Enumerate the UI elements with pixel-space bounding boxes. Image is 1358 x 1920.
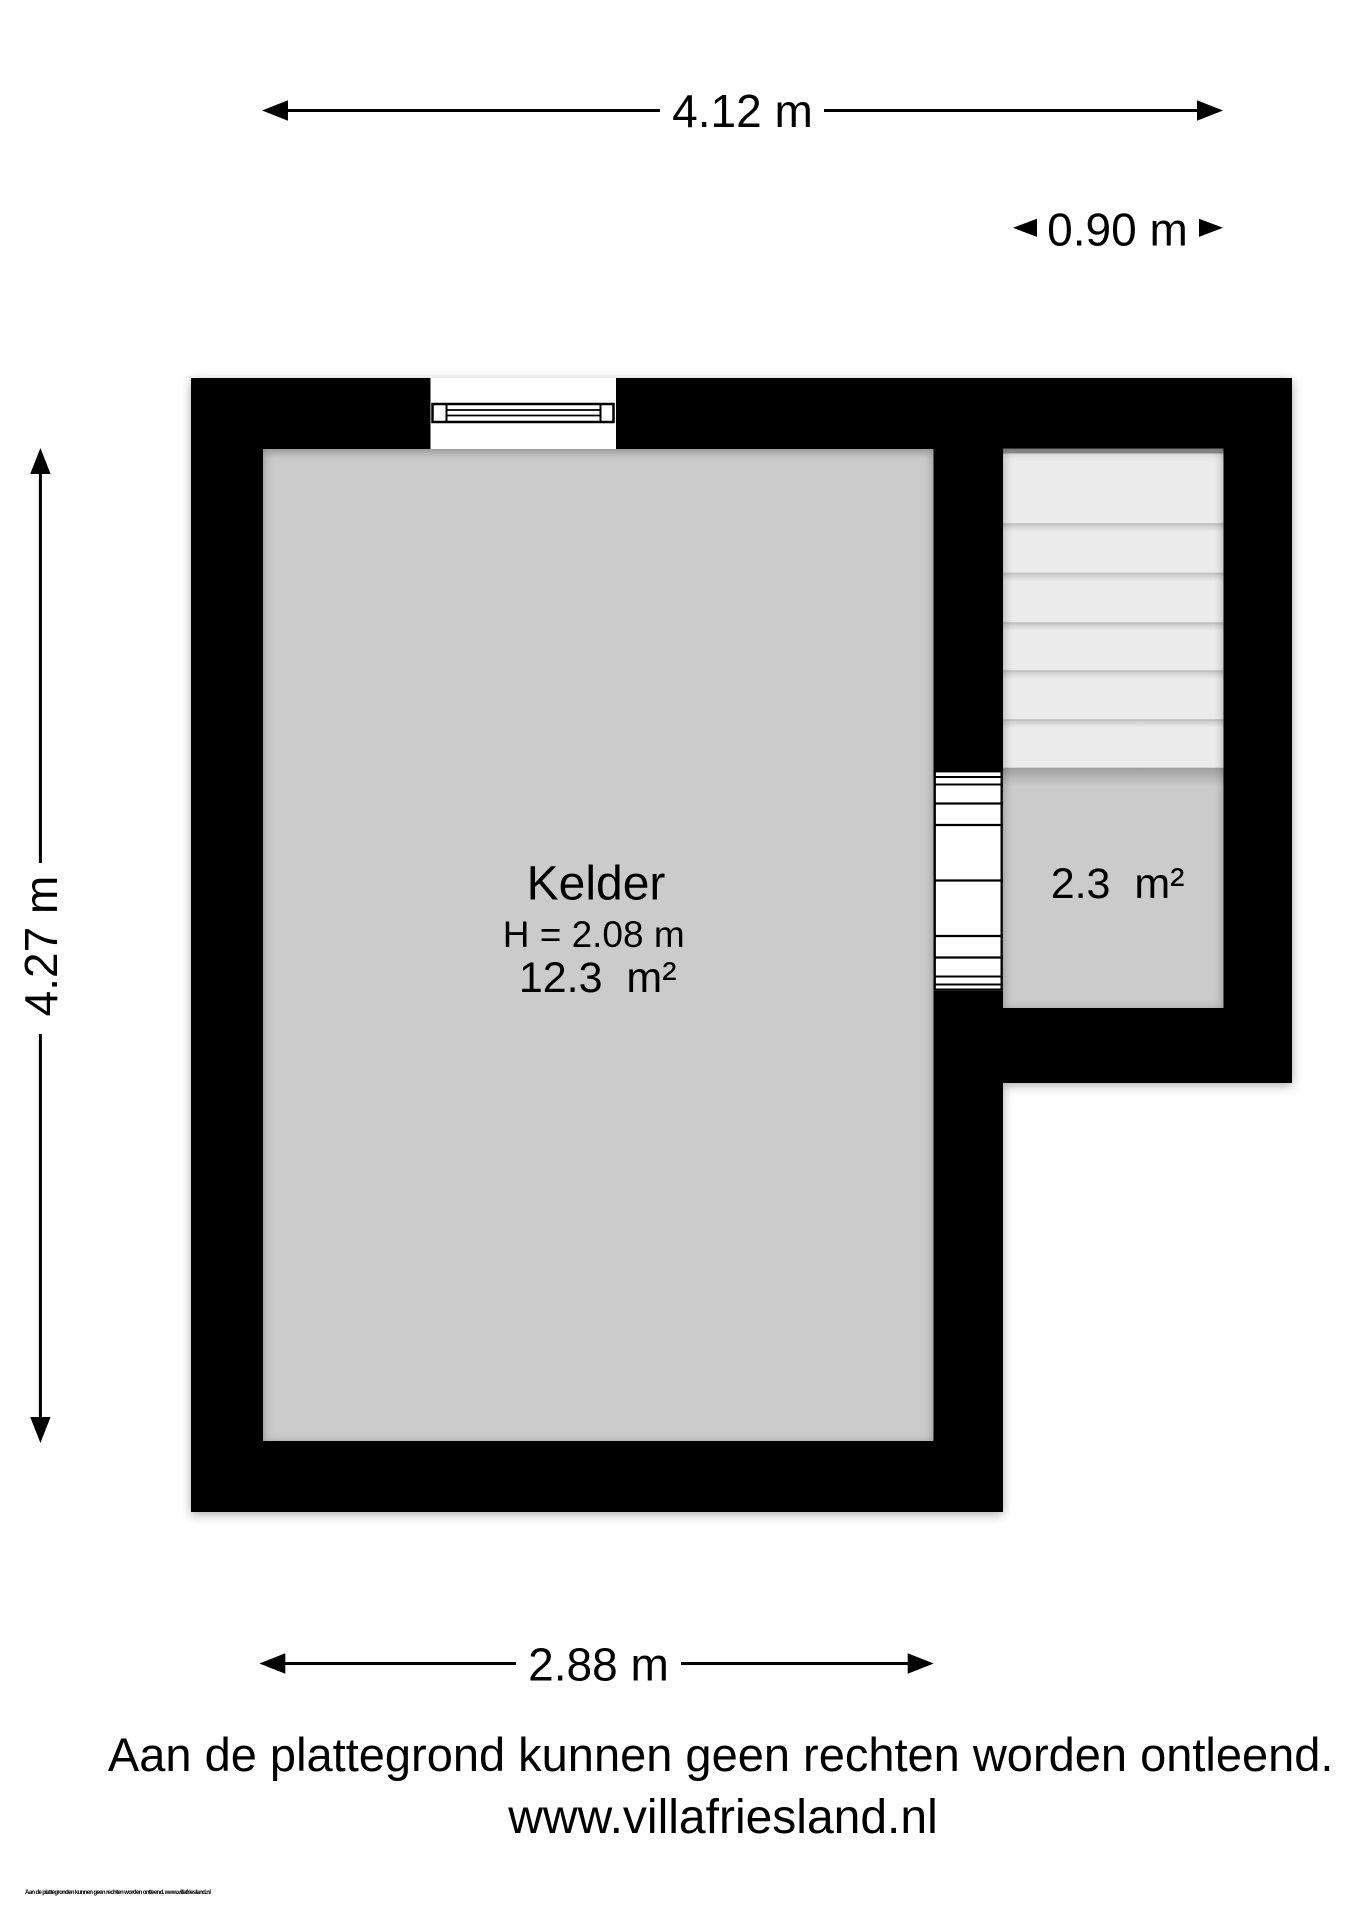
svg-text:Kelder: Kelder [527,858,666,911]
svg-text:4.27 m: 4.27 m [15,876,67,1017]
svg-text:2.88 m: 2.88 m [528,1639,669,1691]
svg-text:www.villafriesland.nl: www.villafriesland.nl [507,1791,938,1844]
svg-text:2.3 m²: 2.3 m² [1051,860,1185,908]
svg-text:Aan de plattegronden kunnen ge: Aan de plattegronden kunnen geen rechten… [25,1890,211,1896]
svg-text:0.90 m: 0.90 m [1047,204,1188,256]
svg-text:Aan de plattegrond kunnen geen: Aan de plattegrond kunnen geen rechten w… [108,1728,1334,1781]
svg-text:12.3 m²: 12.3 m² [519,954,677,1002]
svg-text:4.12 m: 4.12 m [672,85,813,137]
svg-text:H = 2.08 m: H = 2.08 m [503,914,685,955]
